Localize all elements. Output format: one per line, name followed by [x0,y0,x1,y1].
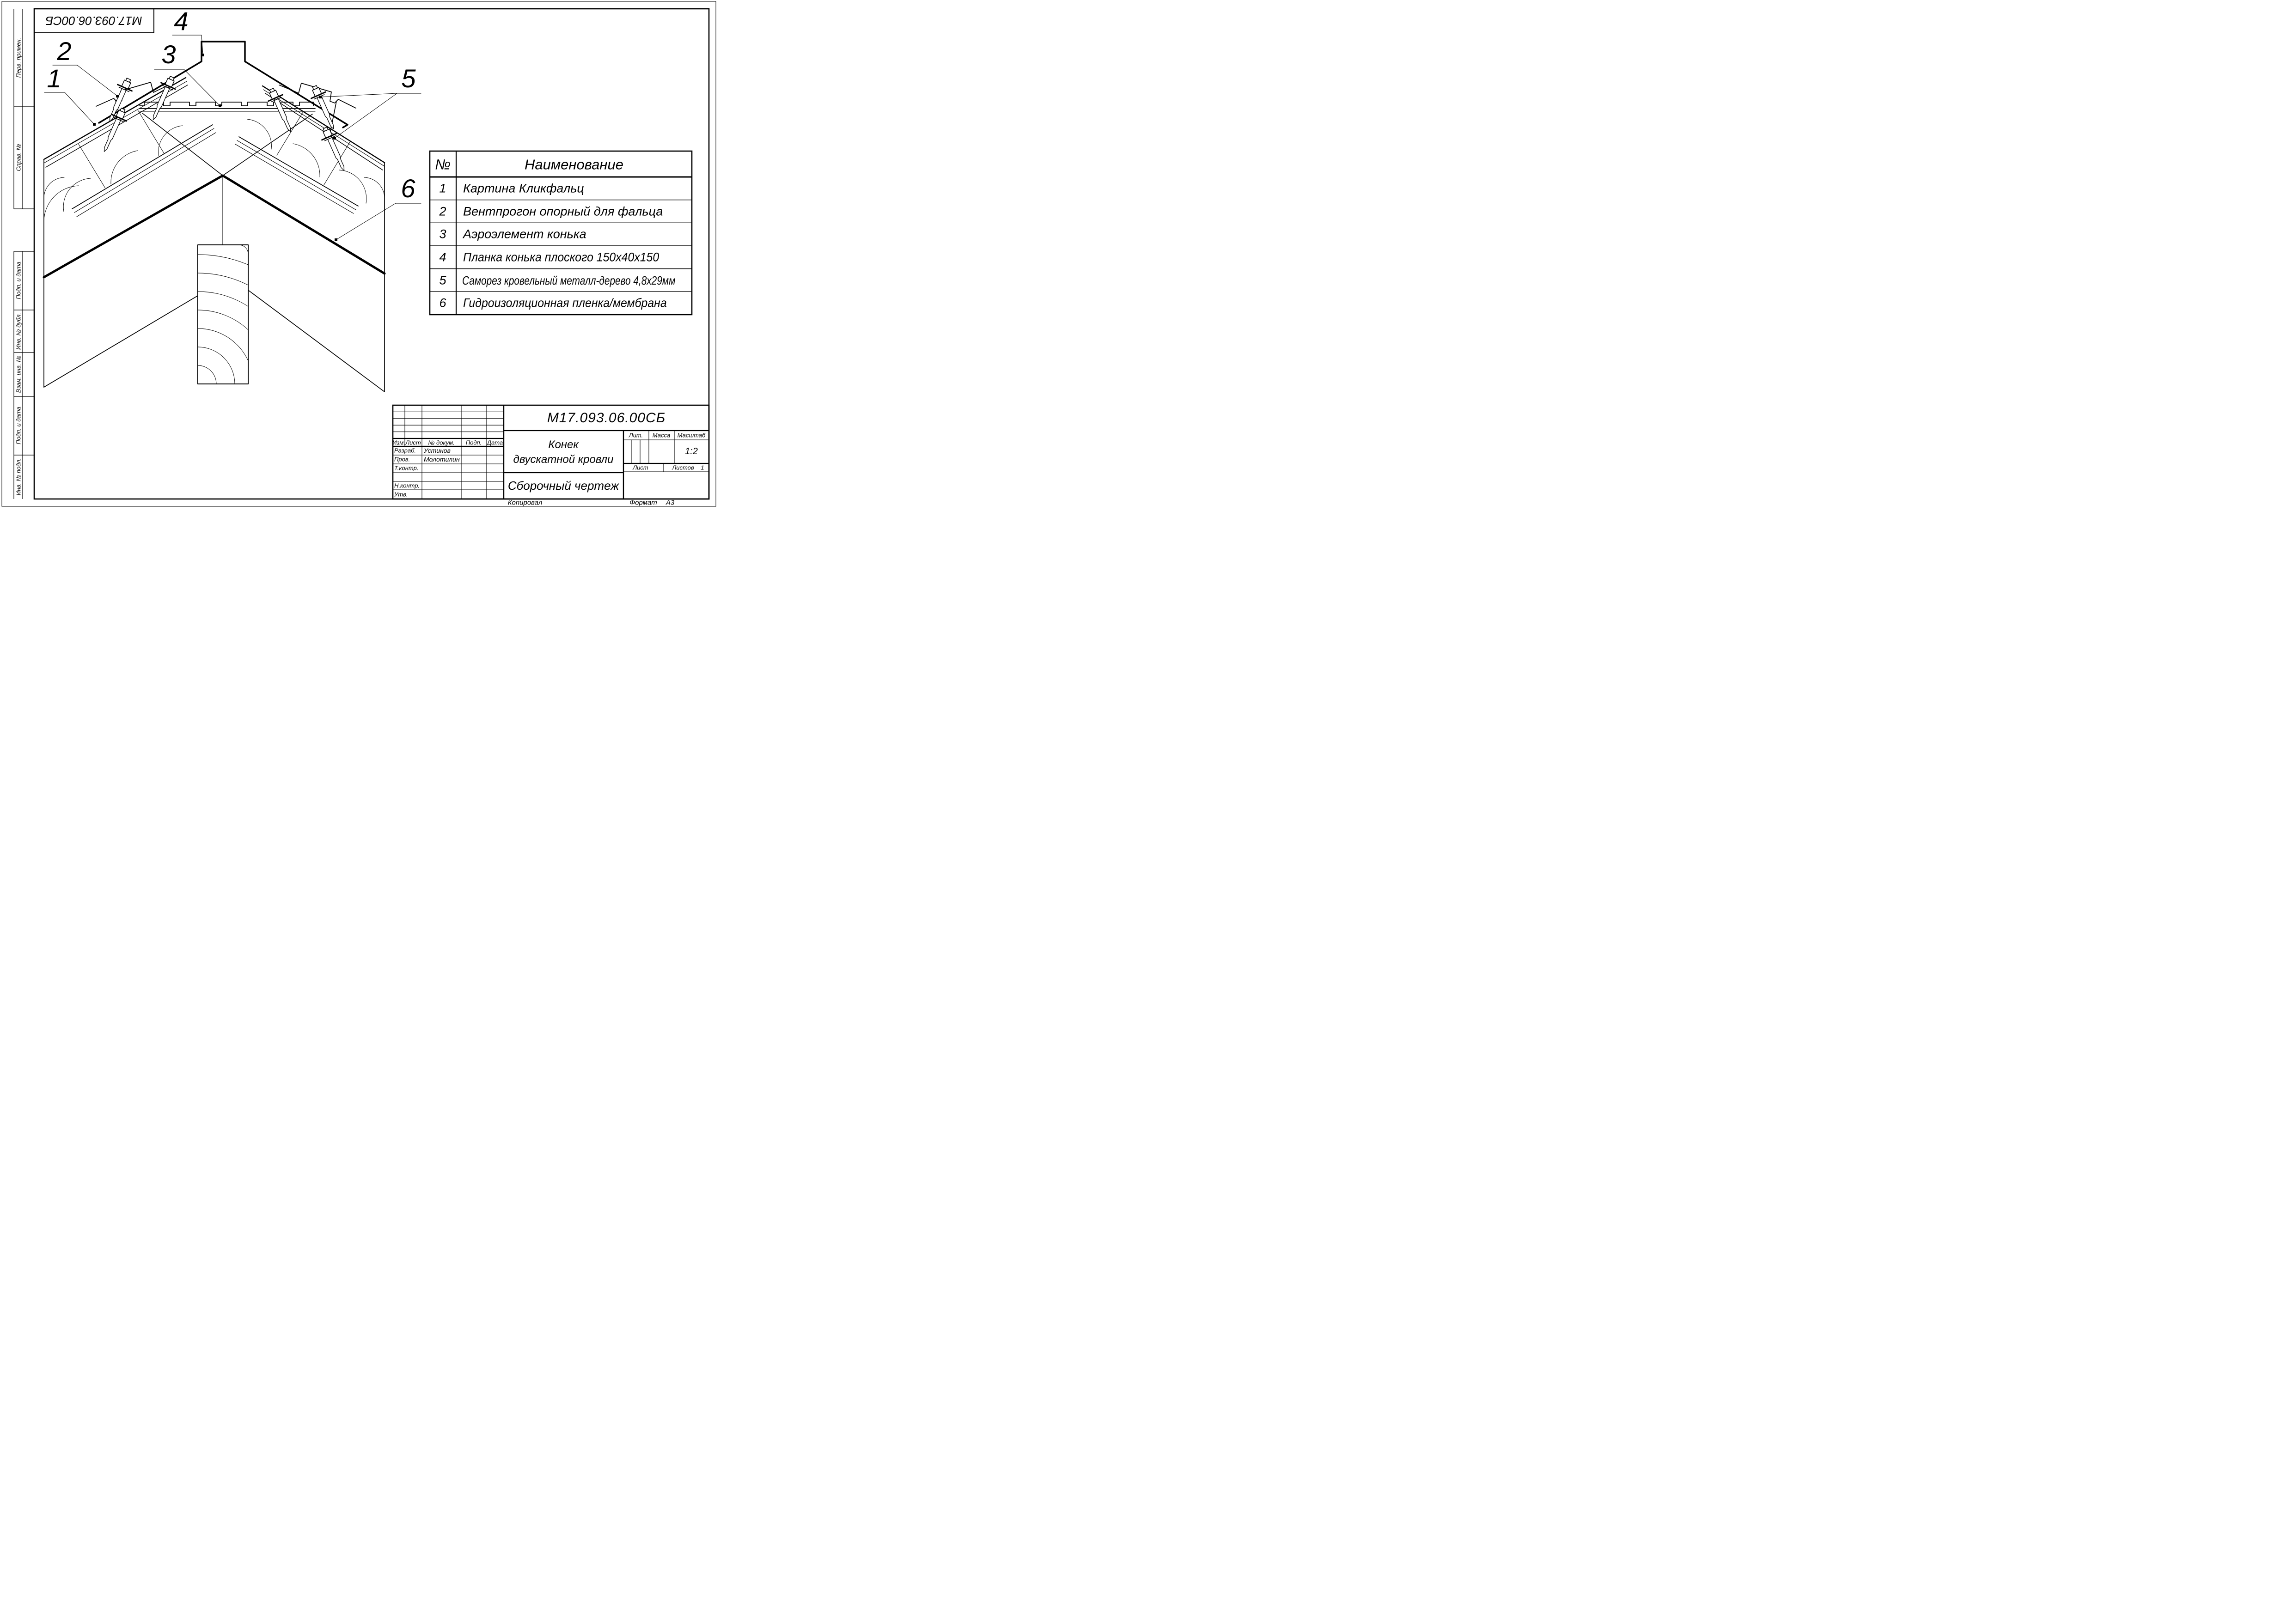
callout-number-6: 6 [401,176,415,201]
title-nkontr-label: Н.контр. [394,483,420,489]
margin-label-vzam-inv-no: Взам. инв. № [16,356,22,393]
part-row-no-3: 3 [439,228,446,241]
title-listov-value: 1 [701,465,704,471]
margin-label-sprav-no: Справ. № [16,144,22,171]
footer-copied: Копировал [508,499,543,506]
callout-number-1: 1 [47,66,61,91]
screws [97,74,351,174]
part-row-name-5: Саморез кровельный металл-дерево 4,8х29м… [462,274,675,286]
margin-label-podp-i-data-1: Подп. и дата [16,262,22,299]
title-doc-type: Сборочный чертеж [508,480,619,492]
margin-label-podp-i-data-2: Подп. и дата [16,407,22,444]
footer-format-label: Формат [629,499,657,506]
title-header-list: Лист [405,440,421,446]
title-name-line1: Конек [548,439,578,450]
title-designation: М17.093.06.00СБ [547,411,666,425]
title-tkontr-label: Т.контр. [394,465,418,471]
part-row-name-1: Картина Кликфальц [463,182,584,195]
title-header-listov: Листов [672,465,694,471]
ridge-board [198,245,327,384]
title-header-data: Дата [487,440,503,446]
footer-format-value: А3 [666,499,674,506]
title-header-izm: Изм. [392,440,405,446]
title-name-line2: двускатной кровли [513,454,614,465]
drawing-sheet: М17.093.06.00СБ Перв. примен. Справ. № П… [0,0,718,508]
margin-label-perv-primen: Перв. примен. [16,38,22,78]
part-row-no-6: 6 [439,297,446,310]
title-header-lit: Лит. [629,432,643,438]
roof-assembly [44,35,421,392]
part-row-no-1: 1 [439,182,446,195]
parts-table-header-name: Наименование [525,158,623,172]
aeroelement-strip [140,102,315,111]
part-row-no-4: 4 [439,251,446,264]
title-header-masshtab: Масштаб [678,432,706,438]
callout-number-3: 3 [161,42,176,67]
wood-grain-left [44,126,183,222]
title-scale-value: 1:2 [685,447,698,456]
callout-leaders [44,35,421,240]
margin-label-inv-no-podl: Инв. № подл. [16,458,22,496]
part-row-no-5: 5 [439,274,446,287]
callout-number-4: 4 [174,8,188,34]
title-header-podp: Подп. [466,440,482,446]
part-row-name-2: Вентпрогон опорный для фальца [463,206,663,218]
right-slope [235,86,385,392]
title-header-list2: Лист [633,465,648,471]
title-header-massa: Масса [653,432,670,438]
callout-number-2: 2 [57,38,71,64]
title-header-no-dokum: № докум. [428,440,454,446]
part-row-no-2: 2 [439,206,446,218]
part-row-name-3: Аэроэлемент конька [463,228,586,241]
part-row-name-6: Гидроизоляционная пленка/мембрана [463,297,667,310]
wood-grain-right [247,119,385,203]
parts-table-header-no: № [435,158,451,172]
margin-label-inv-no-dubl: Инв. № дубл. [16,313,22,350]
title-utv-label: Утв. [394,492,408,498]
title-razrab-label: Разраб. [394,448,416,454]
title-razrab-value: Устинов [424,447,451,454]
title-prov-value: Молотилин [424,456,460,462]
callout-number-5: 5 [401,66,415,91]
stamp-code: М17.093.06.00СБ [45,15,142,27]
title-prov-label: Пров. [394,456,410,462]
left-slope [44,78,216,387]
part-row-name-4: Планка конька плоского 150х40х150 [463,251,659,264]
